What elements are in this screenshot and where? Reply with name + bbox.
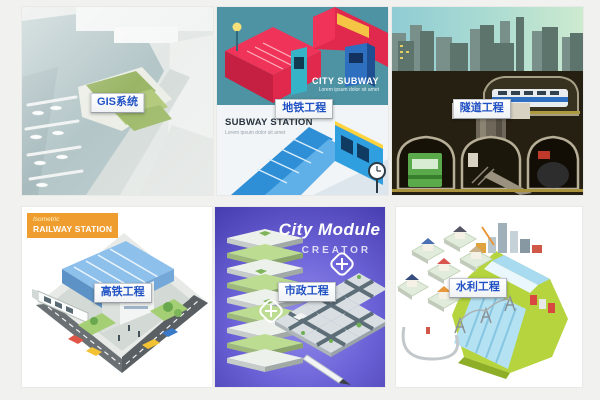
green-train: [408, 153, 442, 187]
city-subway-caption: CITY SUBWAY Lorem ipsum dolor sit amet: [312, 76, 379, 93]
tile-gis-system[interactable]: GIS系统: [22, 7, 213, 195]
tile-subway-engineering[interactable]: CITY SUBWAY Lorem ipsum dolor sit amet S…: [217, 7, 388, 195]
city-module-title: City Module: [276, 220, 383, 240]
city-module-subtitle: CREATOR: [290, 245, 383, 256]
badge-isometric-label: Isometric: [33, 216, 112, 223]
water-engineering-button[interactable]: 水利工程: [449, 278, 507, 298]
badge-railway-station-label: RAILWAY STATION: [33, 224, 112, 234]
tile-rail-engineering[interactable]: Isometric RAILWAY STATION 高铁工程: [22, 207, 212, 387]
subway-station-title: SUBWAY STATION: [225, 117, 313, 128]
tile-municipal-engineering[interactable]: City Module CREATOR 市政工程: [215, 207, 385, 387]
lamp: [233, 23, 242, 32]
rail-engineering-button[interactable]: 高铁工程: [94, 283, 152, 303]
railway-station-badge: Isometric RAILWAY STATION: [27, 213, 118, 238]
tile-tunnel-engineering[interactable]: 隧道工程: [392, 7, 583, 195]
subway-engineering-button[interactable]: 地铁工程: [275, 99, 333, 119]
city-subway-subtitle: Lorem ipsum dolor sit amet: [312, 87, 379, 93]
stylus-pen: [303, 355, 351, 385]
worker-figure: [426, 327, 430, 334]
kiosk: [291, 47, 307, 95]
city-subway-title: CITY SUBWAY: [312, 76, 379, 86]
subway-station-caption: SUBWAY STATION Lorem ipsum dolor sit ame…: [225, 117, 313, 136]
municipal-engineering-button[interactable]: 市政工程: [278, 282, 336, 302]
gis-system-button[interactable]: GIS系统: [90, 93, 145, 113]
subway-station-subtitle: Lorem ipsum dolor sit amet: [225, 130, 313, 136]
tile-water-engineering[interactable]: 水利工程: [396, 207, 582, 387]
tunnel-engineering-button[interactable]: 隧道工程: [453, 99, 511, 119]
